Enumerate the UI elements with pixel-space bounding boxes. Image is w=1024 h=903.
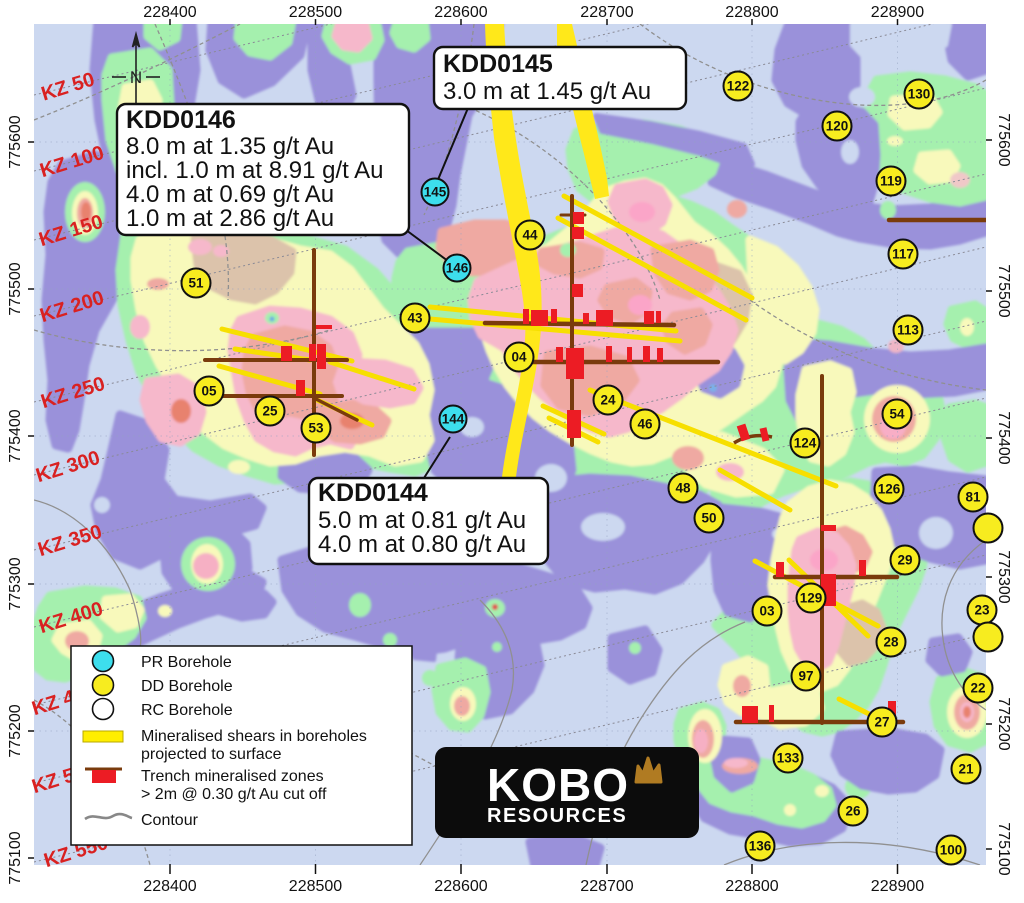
- svg-text:Mineralised shears in borehole: Mineralised shears in boreholes: [141, 728, 367, 745]
- svg-text:26: 26: [845, 804, 861, 819]
- svg-text:113: 113: [897, 323, 919, 338]
- svg-text:25: 25: [262, 404, 278, 419]
- svg-text:136: 136: [749, 839, 772, 854]
- svg-text:3.0 m at 1.45 g/t Au: 3.0 m at 1.45 g/t Au: [443, 78, 651, 105]
- svg-text:Trench mineralised zones: Trench mineralised zones: [141, 768, 324, 785]
- svg-text:228600: 228600: [434, 4, 487, 21]
- svg-text:775200: 775200: [7, 704, 24, 757]
- svg-text:120: 120: [826, 119, 849, 134]
- svg-text:27: 27: [874, 715, 889, 730]
- svg-text:119: 119: [880, 174, 902, 189]
- svg-text:DD Borehole: DD Borehole: [141, 678, 233, 695]
- svg-text:775500: 775500: [7, 262, 24, 315]
- svg-text:775600: 775600: [7, 115, 24, 168]
- svg-text:RC Borehole: RC Borehole: [141, 702, 233, 719]
- svg-text:775200: 775200: [995, 697, 1012, 750]
- svg-text:PR Borehole: PR Borehole: [141, 654, 232, 671]
- svg-text:48: 48: [675, 481, 691, 496]
- svg-text:775400: 775400: [7, 409, 24, 462]
- svg-text:50: 50: [701, 511, 716, 526]
- svg-text:228500: 228500: [289, 4, 342, 21]
- svg-text:29: 29: [897, 553, 912, 568]
- svg-text:775300: 775300: [7, 557, 24, 610]
- svg-text:28: 28: [883, 635, 899, 650]
- svg-text:22: 22: [970, 681, 985, 696]
- svg-text:775100: 775100: [995, 822, 1012, 875]
- svg-text:100: 100: [940, 843, 963, 858]
- svg-text:projected to surface: projected to surface: [141, 746, 282, 763]
- svg-text:> 2m @ 0.30 g/t Au cut off: > 2m @ 0.30 g/t Au cut off: [141, 786, 327, 803]
- svg-text:775300: 775300: [995, 550, 1012, 603]
- svg-text:43: 43: [407, 311, 423, 326]
- svg-text:228400: 228400: [143, 4, 196, 21]
- svg-text:228900: 228900: [871, 4, 924, 21]
- svg-text:8.0 m at 1.35 g/t Au: 8.0 m at 1.35 g/t Au: [126, 133, 334, 160]
- svg-text:130: 130: [908, 87, 931, 102]
- svg-text:117: 117: [892, 247, 914, 262]
- svg-text:05: 05: [201, 384, 217, 399]
- svg-text:228700: 228700: [580, 4, 633, 21]
- svg-text:228500: 228500: [289, 878, 342, 895]
- svg-text:N: N: [130, 68, 142, 87]
- svg-text:1.0 m at 2.86 g/t Au: 1.0 m at 2.86 g/t Au: [126, 205, 334, 232]
- svg-text:44: 44: [522, 228, 538, 243]
- svg-text:24: 24: [600, 393, 616, 408]
- svg-text:53: 53: [308, 421, 324, 436]
- svg-text:129: 129: [800, 591, 823, 606]
- svg-text:23: 23: [974, 603, 990, 618]
- svg-text:81: 81: [965, 490, 981, 505]
- svg-text:228800: 228800: [725, 878, 778, 895]
- svg-text:228700: 228700: [580, 878, 633, 895]
- svg-text:228900: 228900: [871, 878, 924, 895]
- svg-text:228800: 228800: [725, 4, 778, 21]
- svg-text:775500: 775500: [995, 264, 1012, 317]
- svg-text:04: 04: [511, 350, 527, 365]
- svg-text:KDD0144: KDD0144: [318, 479, 428, 507]
- svg-text:4.0 m at 0.69 g/t Au: 4.0 m at 0.69 g/t Au: [126, 181, 334, 208]
- svg-text:133: 133: [777, 751, 800, 766]
- svg-text:144: 144: [442, 412, 465, 427]
- svg-text:51: 51: [188, 276, 204, 291]
- svg-text:122: 122: [727, 79, 750, 94]
- svg-text:03: 03: [759, 604, 775, 619]
- svg-text:126: 126: [878, 482, 901, 497]
- svg-text:775100: 775100: [7, 831, 24, 884]
- svg-text:146: 146: [446, 261, 469, 276]
- svg-text:775600: 775600: [995, 113, 1012, 166]
- svg-text:21: 21: [958, 762, 974, 777]
- svg-text:5.0 m at 0.81 g/t Au: 5.0 m at 0.81 g/t Au: [318, 507, 526, 534]
- svg-text:4.0 m at 0.80 g/t Au: 4.0 m at 0.80 g/t Au: [318, 531, 526, 558]
- svg-text:145: 145: [424, 185, 447, 200]
- svg-text:228400: 228400: [143, 878, 196, 895]
- svg-text:97: 97: [798, 669, 813, 684]
- svg-text:RESOURCES: RESOURCES: [487, 805, 627, 827]
- svg-text:KDD0145: KDD0145: [443, 50, 553, 78]
- svg-text:incl. 1.0 m at 8.91 g/t Au: incl. 1.0 m at 8.91 g/t Au: [126, 157, 383, 184]
- svg-text:Contour: Contour: [141, 812, 199, 829]
- svg-text:54: 54: [889, 407, 905, 422]
- svg-text:KOBO: KOBO: [487, 759, 629, 811]
- svg-text:KDD0146: KDD0146: [126, 106, 236, 134]
- svg-text:124: 124: [794, 436, 817, 451]
- svg-text:46: 46: [637, 417, 653, 432]
- svg-text:775400: 775400: [995, 411, 1012, 464]
- svg-text:228600: 228600: [434, 878, 487, 895]
